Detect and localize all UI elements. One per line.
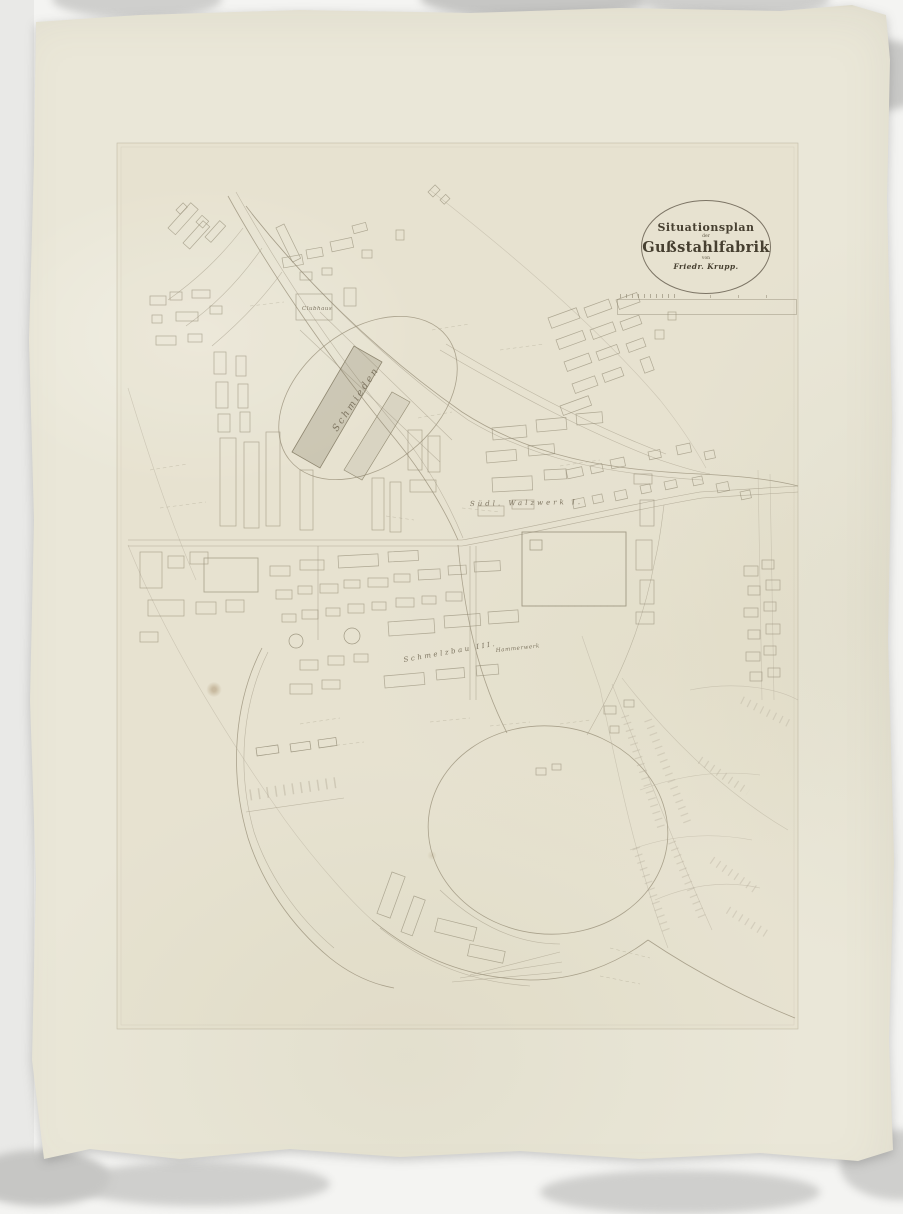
scale-bar-coarse-ticks — [710, 295, 794, 298]
photograph: Schmieden Clubhaus Südl. Walzwerk I. Sch… — [0, 0, 903, 1200]
cartouche-title: Situationsplan — [657, 222, 754, 234]
cartouche-author: Friedr. Krupp. — [673, 262, 738, 272]
paper-blemish — [206, 682, 222, 697]
paper-blemish — [427, 851, 437, 860]
title-cartouche: Situationsplan der Gußstahlfabrik von Fr… — [641, 200, 771, 294]
scale-bar — [617, 299, 797, 315]
scale-bar-fine-ticks — [620, 294, 680, 298]
cartouche-subject: Gußstahlfabrik — [642, 240, 769, 256]
label-clubhaus: Clubhaus — [302, 306, 332, 312]
site-plan-drawing: Schmieden Clubhaus Südl. Walzwerk I. Sch… — [0, 0, 903, 1200]
paper-sheet: Schmieden Clubhaus Südl. Walzwerk I. Sch… — [0, 0, 903, 1200]
